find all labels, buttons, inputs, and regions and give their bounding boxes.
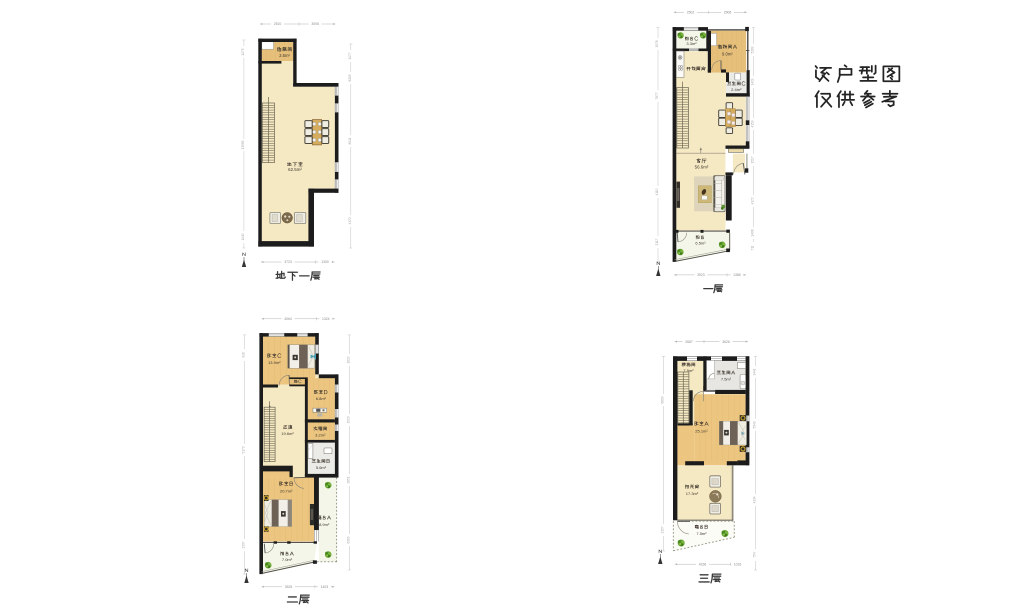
svg-text:6.8m²: 6.8m²	[316, 396, 327, 401]
svg-text:8.9m²: 8.9m²	[319, 522, 330, 527]
svg-text:7.5m²: 7.5m²	[721, 377, 732, 382]
svg-text:4064: 4064	[284, 317, 292, 321]
svg-text:3.5m²: 3.5m²	[279, 53, 290, 58]
svg-text:2.4m²: 2.4m²	[731, 87, 742, 92]
svg-text:62.5m²: 62.5m²	[288, 167, 302, 172]
svg-text:1408: 1408	[751, 229, 755, 236]
svg-text:2337: 2337	[242, 541, 246, 548]
svg-text:4170: 4170	[348, 217, 352, 224]
svg-text:1324: 1324	[322, 317, 330, 321]
svg-text:3525: 3525	[285, 585, 293, 589]
svg-text:7.0m²: 7.0m²	[282, 557, 293, 562]
svg-text:2906: 2906	[724, 11, 732, 15]
svg-text:1441: 1441	[752, 368, 756, 375]
svg-text:5289: 5289	[751, 46, 755, 53]
svg-text:6609: 6609	[661, 396, 665, 403]
svg-text:3923: 3923	[697, 273, 705, 277]
svg-text:5343: 5343	[752, 421, 756, 428]
svg-text:4172: 4172	[751, 197, 755, 204]
svg-text:1386: 1386	[733, 273, 741, 277]
svg-text:1523: 1523	[346, 416, 350, 423]
svg-text:1275: 1275	[241, 48, 245, 55]
svg-text:3.3m²: 3.3m²	[686, 41, 697, 46]
svg-text:6265: 6265	[348, 74, 352, 81]
svg-text:6.5m²: 6.5m²	[695, 240, 706, 245]
svg-text:3006: 3006	[311, 22, 319, 26]
svg-text:1140: 1140	[241, 233, 245, 240]
svg-text:8011: 8011	[348, 137, 352, 144]
svg-text:13.9m²: 13.9m²	[268, 360, 281, 365]
svg-text:1429: 1429	[751, 78, 755, 85]
svg-text:754: 754	[752, 552, 756, 558]
svg-text:19.6m²: 19.6m²	[281, 431, 294, 436]
svg-text:5173: 5173	[242, 446, 246, 453]
svg-text:1177: 1177	[348, 52, 352, 59]
svg-text:1403: 1403	[321, 585, 329, 589]
svg-text:1629: 1629	[346, 356, 350, 363]
svg-text:20.7m²: 20.7m²	[280, 489, 293, 494]
svg-text:916: 916	[242, 352, 246, 358]
svg-text:7877: 7877	[655, 92, 659, 99]
svg-text:1517: 1517	[751, 156, 755, 163]
svg-text:3723: 3723	[284, 260, 292, 264]
svg-text:56.6m²: 56.6m²	[695, 165, 709, 170]
svg-text:6309: 6309	[346, 536, 350, 543]
svg-text:2117: 2117	[655, 238, 659, 245]
svg-text:7.5m²: 7.5m²	[696, 531, 707, 536]
svg-text:2502: 2502	[687, 11, 695, 15]
svg-text:5.6m²: 5.6m²	[316, 465, 327, 470]
svg-text:4110: 4110	[655, 188, 659, 195]
svg-text:2687: 2687	[685, 340, 693, 344]
svg-text:4236: 4236	[699, 562, 707, 566]
svg-text:1016: 1016	[734, 562, 742, 566]
svg-text:9.0m²: 9.0m²	[722, 52, 733, 57]
svg-text:2651: 2651	[346, 476, 350, 483]
svg-text:1300: 1300	[321, 260, 329, 264]
svg-text:3626: 3626	[722, 340, 730, 344]
svg-text:4134: 4134	[752, 496, 756, 503]
svg-text:1578: 1578	[655, 40, 659, 47]
svg-text:17.3m²: 17.3m²	[686, 491, 699, 496]
svg-text:4159: 4159	[751, 120, 755, 127]
svg-text:25.1m²: 25.1m²	[695, 429, 708, 434]
svg-text:13583: 13583	[241, 140, 245, 149]
svg-text:2157: 2157	[661, 526, 665, 533]
svg-text:2510: 2510	[274, 22, 282, 26]
svg-text:3.2m²: 3.2m²	[315, 432, 326, 437]
svg-text:711: 711	[751, 245, 755, 250]
